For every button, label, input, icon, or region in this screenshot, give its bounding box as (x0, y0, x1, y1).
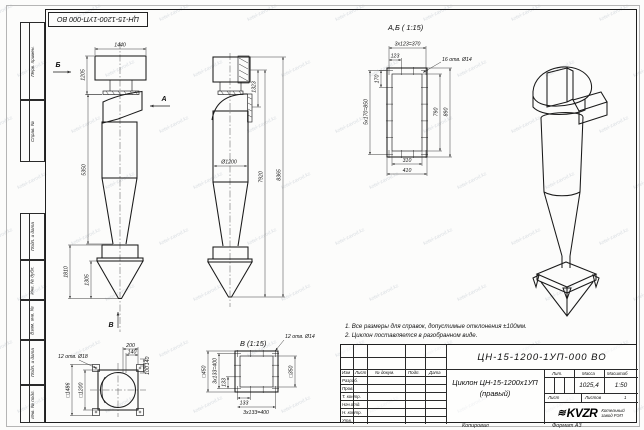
grid-line (341, 416, 446, 417)
dim-label: Ø1200 (220, 160, 237, 166)
dim-label: 410 (403, 168, 412, 174)
side-view-dimensions: 1440 1205 5350 1810 1305 (64, 43, 147, 299)
sig-row-label: Утв. (342, 418, 352, 423)
grid-line (544, 393, 638, 394)
dim-label: 1323 (252, 81, 258, 93)
stamp-podp-data-2: Подп. и дата (20, 340, 45, 385)
dim-label: 3x133=400 (213, 358, 219, 384)
col-header: Подп. (408, 370, 420, 375)
scale-header: Масштаб (607, 371, 628, 376)
dim-label: 3x123=370 (395, 42, 421, 48)
stamp-label: Взам. инв. № (30, 306, 35, 334)
dim-label: 3x133=400 (243, 410, 269, 416)
front-view-dimensions: Ø1200 1323 7920 8365 (214, 57, 286, 297)
col-header: Лист (355, 370, 366, 375)
grid-line (554, 377, 555, 393)
footer-copied: Копировал (462, 423, 489, 429)
title-block: Изм Лист № докум. Подп. Дата Разраб. Про… (340, 344, 637, 423)
part-name-line2: (правый) (446, 388, 544, 399)
dim-label: 1305 (85, 274, 91, 286)
section-ab-view: А,Б ( 1:15) 16 отв. Ø14 3x123=370 123 17… (355, 12, 535, 190)
dim-label: 170 (375, 75, 381, 84)
dim-label: 7920 (259, 171, 265, 183)
note-line: 1. Все размеры для справок, допустимые о… (345, 322, 580, 331)
dim-label: 890 (444, 108, 450, 117)
direction-label-b: Б (56, 62, 61, 69)
grid-line (405, 345, 406, 424)
technical-notes: 1. Все размеры для справок, допустимые о… (345, 322, 580, 340)
mass-value: 1025,4 (574, 377, 604, 393)
dim-label: 790 (434, 108, 440, 117)
part-name-cell: Циклон ЦН-15-1200х1УП (правый) (446, 369, 544, 430)
sheet-label: Лист (548, 395, 559, 400)
dim-label: 5350 (82, 164, 88, 176)
stamp-label: Справ. № (30, 121, 35, 142)
company-name: Котельный завод РЭП (601, 408, 624, 419)
logo-cell: ≋KVZR Котельный завод РЭП (544, 402, 638, 424)
doc-number: ЦН-15-1200-1УП-000 ВО (477, 352, 606, 363)
footer-format: Формат А3 (552, 423, 582, 429)
stamp-label: Подп. и дата (30, 348, 35, 377)
dim-label: 133 (222, 378, 228, 387)
dim-label: 8365 (277, 169, 283, 181)
note-line: 2. Циклон поставляется в разобранном вид… (345, 331, 580, 340)
grid-line (341, 384, 446, 385)
flange-contour (386, 67, 428, 158)
holes-note: 12 отв. Ø14 (285, 334, 315, 340)
stamp-label: Инв. № дубл. (30, 266, 35, 294)
sig-row-label: Разраб. (342, 378, 358, 383)
base-plate-view: 12 отв. Ø18 □1486 □1200 200 140 140 100 (45, 335, 180, 430)
cyclone-side-view: 1440 1205 5350 1810 1305 Б А В (40, 10, 190, 340)
stamp-label: Подп. и дата (30, 222, 35, 251)
dim-label: □1486 (66, 383, 72, 398)
col-header: Изм (342, 370, 350, 375)
cyclone-front-view: Ø1200 1323 7920 8365 (195, 25, 345, 335)
sig-row-label: Н. контр. (342, 410, 362, 415)
stamp-label: Инв. № подл. (30, 390, 35, 419)
kvzr-logo: ≋KVZR (557, 406, 597, 420)
waves-icon: ≋ (557, 408, 565, 419)
view-title: В (1:15) (240, 339, 267, 348)
drawing-sheet: kotel-zavod.kzkotel-zavod.kzkotel-zavod.… (0, 0, 644, 430)
sig-row-label: Нач.отд. (342, 402, 361, 407)
company-line2: завод РЭП (601, 413, 624, 419)
view-v-drawing: В (1:15) 12 отв. Ø14 □450 3x133=400 133 … (185, 320, 355, 425)
col-header: Дата (429, 370, 441, 375)
sig-row-label: Пров. (342, 386, 354, 391)
scale-value: 1:50 (604, 377, 638, 393)
dim-label: 5x170=850 (364, 99, 370, 125)
stamp-inv-podl: Инв. № подл. (20, 385, 45, 423)
logo-text: KVZR (567, 406, 598, 420)
grid-line (341, 357, 446, 358)
dim-label: □1200 (79, 383, 85, 398)
dim-label: 140 (128, 350, 137, 356)
grid-line (581, 393, 582, 402)
holes-note: 12 отв. Ø18 (58, 354, 88, 360)
section-title: А,Б ( 1:15) (387, 23, 424, 32)
mass-header: Масса (582, 371, 595, 376)
sheets-label: Листов (585, 395, 601, 400)
dim-label: 100 (145, 366, 151, 375)
base-contour (90, 363, 146, 417)
holes-note: 16 отв. Ø14 (442, 57, 472, 63)
sig-row-label: Т. контр. (342, 394, 361, 399)
sheets-value: 1 (624, 395, 626, 400)
dim-label: □350 (289, 365, 295, 377)
stamp-label: Перв. примен. (30, 46, 35, 77)
view-direction-arrows: Б А В (53, 62, 170, 329)
dim-label: 1810 (64, 266, 70, 278)
dim-label: 123 (391, 54, 400, 60)
dim-label: 310 (403, 158, 412, 164)
isometric-contour (533, 67, 607, 316)
dim-label: □450 (202, 365, 208, 377)
dim-label: 200 (125, 343, 135, 349)
dim-label: 140 (145, 357, 151, 366)
direction-label-v: В (108, 322, 113, 329)
grid-line (564, 377, 565, 393)
doc-number-cell: ЦН-15-1200-1УП-000 ВО (446, 345, 638, 370)
col-header: № докум. (375, 370, 394, 375)
side-view-contour (95, 56, 146, 299)
dim-label: 1440 (114, 43, 126, 49)
dim-label: 133 (240, 401, 249, 407)
grid-line (367, 345, 368, 424)
cyclone-isometric-view (513, 58, 637, 326)
grid-line (425, 345, 426, 424)
lit-header: Лит. (552, 371, 562, 376)
part-name-line1: Циклон ЦН-15-1200х1УП (446, 377, 544, 388)
flange-contour (234, 350, 279, 393)
direction-label-a: А (160, 96, 166, 103)
dim-label: 1205 (81, 69, 87, 81)
section-ab-dimensions: 16 отв. Ø14 3x123=370 123 170 5x170=850 … (364, 42, 472, 177)
